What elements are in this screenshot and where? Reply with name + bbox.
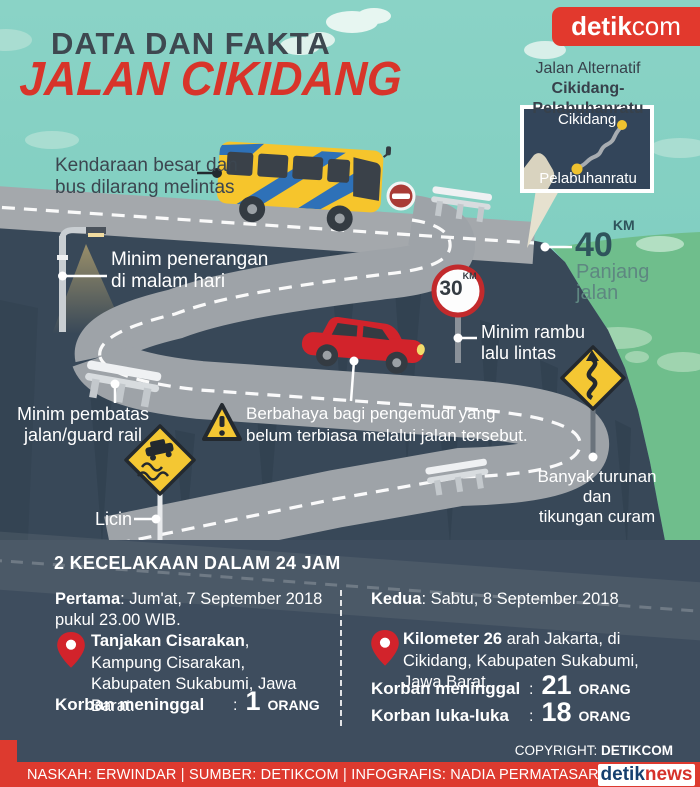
casualty-unit: ORANG: [579, 681, 631, 697]
callout-curves-line2: tikungan curam: [521, 507, 673, 527]
copyright: COPYRIGHT: DETIKCOM: [515, 743, 673, 758]
brand-bold: detik: [601, 764, 645, 786]
distance-unit: KM: [613, 217, 635, 233]
first-accident-time: pukul 23.00 WIB.: [55, 610, 181, 632]
callout-danger-line1: Berbahaya bagi pengemudi yang: [246, 403, 528, 425]
callout-danger: Berbahaya bagi pengemudi yang belum terb…: [246, 403, 528, 447]
panel-divider: [340, 590, 342, 726]
second-accident-datetime: Kedua: Sabtu, 8 September 2018: [371, 589, 619, 611]
first-accident-date: : Jum'at, 7 September 2018: [120, 590, 322, 608]
no-entry-sign-icon: [388, 183, 414, 209]
map-title-line1: Jalan Alternatif: [506, 59, 670, 79]
callout-lighting: Minim penerangan di malam hari: [111, 249, 268, 293]
casualty-value: 1: [245, 686, 260, 717]
casualty-label: Korban luka-luka: [371, 706, 529, 726]
callout-bus: Kendaraan besar dan bus dilarang melinta…: [55, 155, 238, 199]
callout-guardrail: Minim pembatas jalan/guard rail: [16, 404, 150, 446]
page-title: JALAN CIKIDANG: [18, 52, 403, 107]
first-casualty-row: Korban meninggal : 1 ORANG: [55, 686, 320, 717]
casualty-unit: ORANG: [579, 708, 631, 724]
second-casualty-row-2: Korban luka-luka : 18 ORANG: [371, 697, 631, 728]
callout-guardrail-line1: Minim pembatas: [16, 404, 150, 425]
infographic-root: DATA DAN FAKTA JALAN CIKIDANG detikcom J…: [0, 0, 700, 787]
distance-label-line2: jalan: [576, 283, 649, 304]
casualty-colon: :: [529, 708, 533, 726]
callout-lighting-line1: Minim penerangan: [111, 249, 268, 271]
second-accident-label: Kedua: [371, 590, 421, 608]
speed-value: 30: [439, 277, 462, 300]
callout-guardrail-line2: jalan/guard rail: [16, 425, 150, 446]
logo-bold: detik: [571, 11, 632, 42]
callout-curves: Banyak turunan dan tikungan curam: [521, 467, 673, 527]
callout-signs: Minim rambu lalu lintas: [481, 322, 585, 364]
footer-bar: NASKAH: ERWINDAR | SUMBER: DETIKCOM | IN…: [0, 762, 700, 787]
callout-curves-line1: Banyak turunan dan: [521, 467, 673, 507]
callout-signs-line1: Minim rambu: [481, 322, 585, 343]
distance-number: 40: [575, 226, 613, 264]
callout-danger-line2: belum terbiasa melalui jalan tersebut.: [246, 425, 528, 447]
road-length-label: Panjang jalan: [576, 262, 649, 304]
callout-slippery: Licin: [88, 509, 132, 530]
distance-label-line1: Panjang: [576, 262, 649, 283]
credits-text: NASKAH: ERWINDAR | SUMBER: DETIKCOM | IN…: [27, 767, 621, 783]
first-accident-datetime: Pertama: Jum'at, 7 September 2018: [55, 589, 322, 611]
logo-light: com: [632, 11, 681, 42]
callout-lighting-line2: di malam hari: [111, 271, 268, 293]
second-location-bold: Kilometer 26: [403, 630, 502, 648]
first-location-bold: Tanjakan Cisarakan: [91, 632, 245, 650]
casualty-label: Korban meninggal: [55, 695, 233, 715]
accident-heading: 2 KECELAKAAN DALAM 24 JAM: [54, 553, 341, 574]
detikcom-logo: detikcom: [552, 7, 700, 46]
copyright-value: DETIKCOM: [601, 743, 673, 758]
road-length-value: 40KM: [575, 226, 635, 265]
brand-light: news: [645, 764, 693, 786]
detiknews-logo: detiknews: [598, 764, 695, 786]
map-inset-title: Jalan Alternatif Cikidang-Pelabuhanratu: [506, 59, 670, 119]
casualty-colon: :: [233, 697, 237, 715]
second-accident-date: : Sabtu, 8 September 2018: [421, 590, 618, 608]
copyright-label: COPYRIGHT:: [515, 743, 601, 758]
callout-signs-line2: lalu lintas: [481, 343, 585, 364]
casualty-value: 18: [541, 697, 571, 728]
map-city-pelabuhanratu: Pelabuhanratu: [524, 170, 652, 187]
first-accident-label: Pertama: [55, 590, 120, 608]
casualty-unit: ORANG: [267, 697, 319, 713]
map-city-cikidang: Cikidang: [558, 111, 616, 128]
speed-unit: KM: [463, 271, 477, 281]
speed-limit-text: 30KM: [433, 277, 483, 301]
callout-bus-line1: Kendaraan besar dan: [55, 155, 238, 177]
casualty-label: Korban meninggal: [371, 679, 529, 699]
callout-bus-line2: bus dilarang melintas: [55, 177, 238, 199]
